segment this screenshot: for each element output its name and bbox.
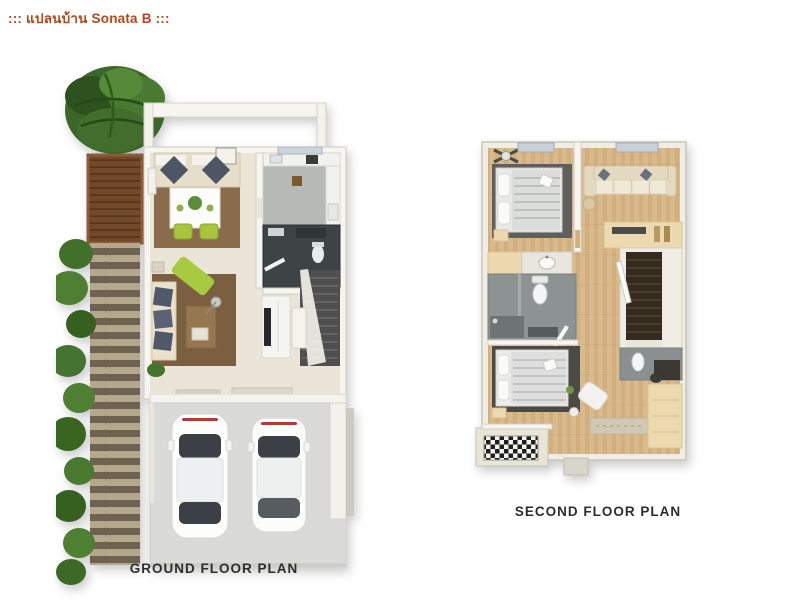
window — [616, 143, 658, 152]
sink — [539, 257, 555, 269]
garage — [150, 394, 354, 567]
nightstand — [494, 230, 508, 241]
under-stair-cabinet — [292, 308, 306, 348]
kitchen-window — [278, 147, 322, 154]
nightstand — [492, 408, 506, 418]
door-opening — [257, 198, 262, 218]
ground-floor-plan-image — [56, 56, 366, 586]
bath-sink — [268, 228, 284, 236]
coffee-table — [186, 306, 216, 348]
window — [518, 143, 554, 152]
wood-deck — [88, 155, 142, 243]
second-floor-plan-label: SECOND FLOOR PLAN — [513, 504, 683, 520]
balcony — [476, 424, 552, 466]
kitchen — [262, 147, 340, 225]
rear-step — [564, 458, 588, 475]
garage-side-wall — [330, 403, 346, 519]
stove — [306, 155, 318, 164]
ground-floor-plan-label: GROUND FLOOR PLAN — [129, 561, 299, 577]
tv-cabinet — [262, 296, 290, 358]
interior-wall — [256, 153, 263, 288]
potted-plant — [147, 363, 165, 377]
wardrobe — [648, 373, 682, 448]
tv — [612, 227, 646, 234]
refrigerator — [328, 204, 338, 220]
garden-path — [90, 243, 140, 565]
cabinet — [488, 252, 522, 274]
green-chair — [174, 224, 192, 239]
green-chair — [200, 224, 218, 239]
table-plant — [188, 196, 202, 210]
tv-counter — [604, 222, 682, 248]
kitchen-sink — [270, 155, 282, 163]
toilet — [312, 245, 324, 263]
car-left — [168, 414, 232, 538]
checkered-floor — [484, 436, 538, 460]
toilet — [632, 353, 644, 371]
staircase-second — [616, 248, 682, 348]
dining-area — [148, 148, 240, 248]
car-right — [248, 418, 310, 532]
floor-plan-page: ::: แปลนบ้าน Sonata B ::: — [0, 0, 786, 607]
bag — [650, 373, 662, 383]
stool — [570, 408, 579, 417]
second-bathroom — [488, 274, 578, 348]
plant — [566, 386, 574, 394]
toilet — [532, 276, 548, 304]
vanity-row — [488, 252, 572, 274]
small-wc — [620, 348, 682, 380]
tv — [264, 308, 271, 346]
second-floor-plan-image — [468, 134, 698, 479]
windshield — [179, 434, 221, 458]
page-title: ::: แปลนบ้าน Sonata B ::: — [8, 7, 170, 29]
windshield — [258, 436, 300, 458]
side-table — [583, 198, 595, 210]
